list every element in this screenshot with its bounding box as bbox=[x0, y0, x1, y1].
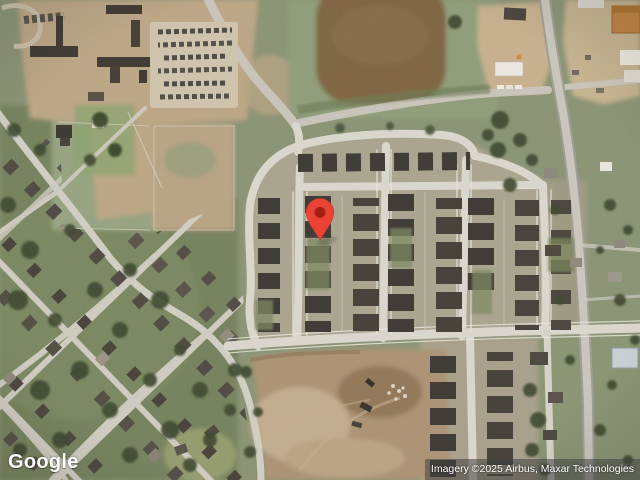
attribution-text: Imagery ©2025 Airbus, Maxar Technologies bbox=[431, 463, 634, 475]
map-canvas[interactable]: Google Imagery ©2025 Airbus, Maxar Techn… bbox=[0, 0, 640, 480]
pin-dot bbox=[315, 207, 326, 218]
satellite-imagery bbox=[0, 0, 640, 480]
imagery-attribution: Imagery ©2025 Airbus, Maxar Technologies bbox=[425, 459, 640, 480]
google-logo[interactable]: Google bbox=[8, 451, 79, 474]
